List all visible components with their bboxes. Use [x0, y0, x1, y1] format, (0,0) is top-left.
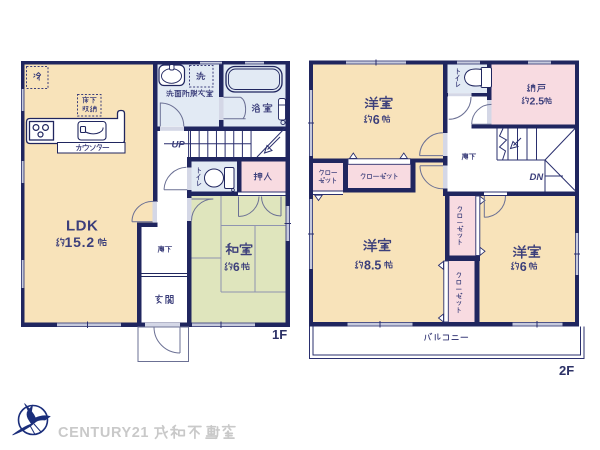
svg-text:UP: UP: [172, 140, 186, 151]
svg-text:8.5: 8.5: [364, 259, 381, 273]
svg-text:CENTURY21: CENTURY21: [58, 425, 149, 441]
svg-text:6: 6: [233, 260, 240, 274]
svg-text:LDK: LDK: [66, 218, 98, 235]
svg-text:2F: 2F: [559, 363, 574, 378]
svg-text:1F: 1F: [272, 327, 287, 342]
svg-text:6: 6: [373, 113, 380, 127]
svg-text:2.5: 2.5: [530, 96, 545, 108]
svg-text:6: 6: [520, 260, 527, 274]
svg-text:15.2: 15.2: [65, 234, 95, 250]
svg-text:DN: DN: [530, 172, 545, 183]
